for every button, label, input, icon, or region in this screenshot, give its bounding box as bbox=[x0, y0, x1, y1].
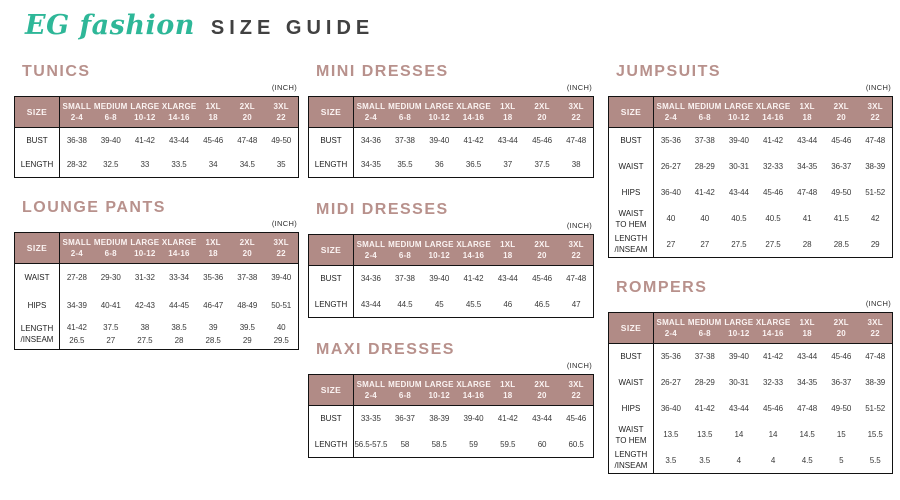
measurement-value: 41-42 bbox=[756, 128, 790, 154]
measurement-value: 58 bbox=[388, 432, 422, 458]
measurement-value: 47-48 bbox=[559, 128, 593, 153]
measurement-label: WAIST bbox=[609, 370, 654, 396]
measurement-value: 30-31 bbox=[722, 370, 756, 396]
measurement-value: 15 bbox=[824, 422, 858, 448]
size-column-header: 1XL 18 bbox=[491, 97, 525, 128]
measurement-value: 50-51 bbox=[264, 292, 298, 320]
measurement-value: 34-36 bbox=[354, 128, 388, 153]
measurement-value: 44-45 bbox=[162, 292, 196, 320]
measurement-value: 45-46 bbox=[559, 406, 593, 432]
measurement-value: 40.5 bbox=[756, 206, 790, 232]
measurement-label: BUST bbox=[309, 128, 354, 153]
size-column-header: LARGE 10-12 bbox=[422, 375, 456, 406]
measurement-value: 47-48 bbox=[858, 344, 892, 370]
measurement-value: 56.5-57.5 bbox=[354, 432, 388, 458]
measurement-value: 28-32 bbox=[60, 153, 94, 178]
measurement-value: 32-33 bbox=[756, 370, 790, 396]
measurement-value: 37 bbox=[491, 153, 525, 178]
measurement-value: 39-40 bbox=[456, 406, 490, 432]
table-row: WAIST26-2728-2930-3132-3334-3536-3738-39 bbox=[609, 370, 893, 396]
measurement-value: 34-36 bbox=[354, 266, 388, 292]
measurement-value: 43-44 bbox=[722, 180, 756, 206]
size-column-header: SMALL 2-4 bbox=[354, 375, 388, 406]
measurement-value: 46 bbox=[491, 292, 525, 318]
table-row: WAIST26-2728-2930-3132-3334-3536-3738-39 bbox=[609, 154, 893, 180]
measurement-value: 27.5 bbox=[722, 232, 756, 258]
measurement-label: BUST bbox=[309, 406, 354, 432]
size-column-header: SIZE bbox=[309, 375, 354, 406]
measurement-value: 5 bbox=[824, 448, 858, 474]
size-column-header: XLARGE 14-16 bbox=[162, 97, 196, 128]
size-table-maxi-dresses: SIZESMALL 2-4MEDIUM 6-8LARGE 10-12XLARGE… bbox=[308, 374, 594, 458]
measurement-value: 45-46 bbox=[756, 396, 790, 422]
table-row: LENGTH56.5-57.55858.55959.56060.5 bbox=[309, 432, 594, 458]
measurement-value: 14 bbox=[756, 422, 790, 448]
size-column-header: 3XL 22 bbox=[264, 97, 298, 128]
measurement-value: 4 bbox=[722, 448, 756, 474]
measurement-value: 47-48 bbox=[559, 266, 593, 292]
header-row: SIZESMALL 2-4MEDIUM 6-8LARGE 10-12XLARGE… bbox=[15, 97, 299, 128]
measurement-label: BUST bbox=[609, 128, 654, 154]
measurement-value: 27-28 bbox=[60, 264, 94, 292]
size-column-header: SMALL 2-4 bbox=[654, 313, 688, 344]
measurement-value: 35-36 bbox=[654, 344, 688, 370]
unit-label: (INCH) bbox=[608, 83, 891, 93]
size-column-header: 3XL 22 bbox=[858, 97, 892, 128]
size-column-header: LARGE 10-12 bbox=[722, 313, 756, 344]
size-column-header: SMALL 2-4 bbox=[654, 97, 688, 128]
measurement-value: 41-42 bbox=[456, 128, 490, 153]
measurement-value: 41-42 bbox=[688, 396, 722, 422]
measurement-value: 40.5 bbox=[722, 206, 756, 232]
table-row: WAIST TO HEM404040.540.54141.542 bbox=[609, 206, 893, 232]
measurement-value: 41.5 bbox=[824, 206, 858, 232]
measurement-value: 45-46 bbox=[756, 180, 790, 206]
size-column-header: LARGE 10-12 bbox=[128, 97, 162, 128]
table-row: HIPS36-4041-4243-4445-4647-4849-5051-52 bbox=[609, 396, 893, 422]
measurement-value: 26-27 bbox=[654, 154, 688, 180]
measurement-value: 43-44 bbox=[790, 344, 824, 370]
measurement-value: 4.5 bbox=[790, 448, 824, 474]
measurement-value: 38.5 28 bbox=[162, 320, 196, 350]
size-column-header: 2XL 20 bbox=[824, 97, 858, 128]
measurement-value: 28-29 bbox=[688, 370, 722, 396]
header-row: SIZESMALL 2-4MEDIUM 6-8LARGE 10-12XLARGE… bbox=[309, 97, 594, 128]
measurement-value: 51-52 bbox=[858, 180, 892, 206]
measurement-value: 60 bbox=[525, 432, 559, 458]
size-column-header: 2XL 20 bbox=[525, 375, 559, 406]
measurement-value: 40 29.5 bbox=[264, 320, 298, 350]
measurement-label: LENGTH /INSEAM bbox=[609, 232, 654, 258]
table-row: WAIST TO HEM13.513.5141414.51515.5 bbox=[609, 422, 893, 448]
size-column-header: SIZE bbox=[609, 313, 654, 344]
size-column-header: MEDIUM 6-8 bbox=[94, 97, 128, 128]
measurement-value: 13.5 bbox=[654, 422, 688, 448]
size-column-header: SIZE bbox=[609, 97, 654, 128]
measurement-value: 4 bbox=[756, 448, 790, 474]
measurement-value: 35 bbox=[264, 153, 298, 178]
section-title-maxi-dresses: MAXI DRESSES bbox=[316, 340, 594, 360]
size-column-header: MEDIUM 6-8 bbox=[388, 97, 422, 128]
measurement-label: WAIST TO HEM bbox=[609, 422, 654, 448]
header-row: SIZESMALL 2-4MEDIUM 6-8LARGE 10-12XLARGE… bbox=[609, 313, 893, 344]
size-column-header: XLARGE 14-16 bbox=[456, 97, 490, 128]
measurement-value: 43-44 bbox=[491, 128, 525, 153]
size-column-header: LARGE 10-12 bbox=[128, 233, 162, 264]
measurement-value: 26-27 bbox=[654, 370, 688, 396]
measurement-value: 41 bbox=[790, 206, 824, 232]
table-row: LENGTH /INSEAM41-42 26.537.5 2738 27.538… bbox=[15, 320, 299, 350]
measurement-value: 33-35 bbox=[354, 406, 388, 432]
measurement-value: 38-39 bbox=[858, 154, 892, 180]
measurement-value: 33 bbox=[128, 153, 162, 178]
size-column-header: SIZE bbox=[309, 97, 354, 128]
section-mini-dresses: MINI DRESSES (INCH) SIZESMALL 2-4MEDIUM … bbox=[308, 62, 594, 178]
measurement-value: 36-37 bbox=[824, 154, 858, 180]
measurement-value: 32.5 bbox=[94, 153, 128, 178]
header-row: SIZESMALL 2-4MEDIUM 6-8LARGE 10-12XLARGE… bbox=[309, 235, 594, 266]
measurement-value: 3.5 bbox=[654, 448, 688, 474]
section-tunics: TUNICS (INCH) SIZESMALL 2-4MEDIUM 6-8LAR… bbox=[14, 62, 299, 178]
header-row: SIZESMALL 2-4MEDIUM 6-8LARGE 10-12XLARGE… bbox=[609, 97, 893, 128]
size-column-header: SMALL 2-4 bbox=[354, 235, 388, 266]
measurement-value: 30-31 bbox=[722, 154, 756, 180]
measurement-value: 28.5 bbox=[824, 232, 858, 258]
table-row: BUST34-3637-3839-4041-4243-4445-4647-48 bbox=[309, 128, 594, 153]
size-column-header: XLARGE 14-16 bbox=[756, 97, 790, 128]
size-column-header: MEDIUM 6-8 bbox=[688, 313, 722, 344]
measurement-label: HIPS bbox=[15, 292, 60, 320]
measurement-label: LENGTH /INSEAM bbox=[15, 320, 60, 350]
measurement-value: 40-41 bbox=[94, 292, 128, 320]
section-title-midi-dresses: MIDI DRESSES bbox=[316, 200, 594, 220]
measurement-value: 14.5 bbox=[790, 422, 824, 448]
measurement-value: 40 bbox=[654, 206, 688, 232]
size-column-header: 2XL 20 bbox=[230, 233, 264, 264]
page-title: SIZE GUIDE bbox=[211, 17, 374, 40]
size-column-header: LARGE 10-12 bbox=[722, 97, 756, 128]
measurement-value: 34-35 bbox=[354, 153, 388, 178]
measurement-value: 42 bbox=[858, 206, 892, 232]
measurement-value: 58.5 bbox=[422, 432, 456, 458]
measurement-value: 37-38 bbox=[688, 128, 722, 154]
size-column-header: 1XL 18 bbox=[790, 97, 824, 128]
measurement-label: WAIST bbox=[609, 154, 654, 180]
unit-label: (INCH) bbox=[308, 361, 592, 371]
measurement-value: 34-35 bbox=[790, 370, 824, 396]
measurement-value: 46.5 bbox=[525, 292, 559, 318]
measurement-label: LENGTH bbox=[309, 153, 354, 178]
measurement-value: 40 bbox=[688, 206, 722, 232]
measurement-value: 37.5 27 bbox=[94, 320, 128, 350]
size-column-header: MEDIUM 6-8 bbox=[94, 233, 128, 264]
table-row: LENGTH43-4444.54545.54646.547 bbox=[309, 292, 594, 318]
measurement-value: 47-48 bbox=[790, 396, 824, 422]
measurement-value: 5.5 bbox=[858, 448, 892, 474]
measurement-value: 41-42 bbox=[128, 128, 162, 153]
measurement-value: 43-44 bbox=[790, 128, 824, 154]
measurement-value: 39-40 bbox=[722, 128, 756, 154]
measurement-value: 32-33 bbox=[756, 154, 790, 180]
measurement-value: 49-50 bbox=[264, 128, 298, 153]
measurement-value: 38-39 bbox=[858, 370, 892, 396]
section-title-mini-dresses: MINI DRESSES bbox=[316, 62, 594, 82]
size-column-header: 3XL 22 bbox=[559, 375, 593, 406]
table-row: BUST35-3637-3839-4041-4243-4445-4647-48 bbox=[609, 128, 893, 154]
measurement-value: 27 bbox=[688, 232, 722, 258]
unit-label: (INCH) bbox=[14, 219, 297, 229]
measurement-value: 36-40 bbox=[654, 180, 688, 206]
size-column-header: 1XL 18 bbox=[196, 233, 230, 264]
header-row: SIZESMALL 2-4MEDIUM 6-8LARGE 10-12XLARGE… bbox=[309, 375, 594, 406]
measurement-value: 39-40 bbox=[422, 266, 456, 292]
measurement-value: 46-47 bbox=[196, 292, 230, 320]
measurement-value: 51-52 bbox=[858, 396, 892, 422]
size-column-header: 2XL 20 bbox=[525, 97, 559, 128]
size-column-header: MEDIUM 6-8 bbox=[688, 97, 722, 128]
measurement-value: 41-42 bbox=[688, 180, 722, 206]
size-column-header: 1XL 18 bbox=[491, 235, 525, 266]
size-column-header: XLARGE 14-16 bbox=[456, 235, 490, 266]
size-column-header: LARGE 10-12 bbox=[422, 235, 456, 266]
measurement-value: 33.5 bbox=[162, 153, 196, 178]
measurement-value: 47-48 bbox=[858, 128, 892, 154]
measurement-label: LENGTH bbox=[309, 432, 354, 458]
measurement-value: 60.5 bbox=[559, 432, 593, 458]
measurement-value: 37-38 bbox=[688, 344, 722, 370]
section-maxi-dresses: MAXI DRESSES (INCH) SIZESMALL 2-4MEDIUM … bbox=[308, 340, 594, 458]
size-column-header: LARGE 10-12 bbox=[422, 97, 456, 128]
size-column-header: 3XL 22 bbox=[264, 233, 298, 264]
header-row: SIZESMALL 2-4MEDIUM 6-8LARGE 10-12XLARGE… bbox=[15, 233, 299, 264]
measurement-value: 39.5 29 bbox=[230, 320, 264, 350]
measurement-label: BUST bbox=[309, 266, 354, 292]
measurement-value: 35-36 bbox=[196, 264, 230, 292]
measurement-value: 3.5 bbox=[688, 448, 722, 474]
measurement-value: 39-40 bbox=[264, 264, 298, 292]
measurement-value: 41-42 26.5 bbox=[60, 320, 94, 350]
measurement-value: 33-34 bbox=[162, 264, 196, 292]
measurement-label: WAIST TO HEM bbox=[609, 206, 654, 232]
measurement-value: 42-43 bbox=[128, 292, 162, 320]
size-table-midi-dresses: SIZESMALL 2-4MEDIUM 6-8LARGE 10-12XLARGE… bbox=[308, 234, 594, 318]
measurement-value: 59.5 bbox=[491, 432, 525, 458]
size-table-tunics: SIZESMALL 2-4MEDIUM 6-8LARGE 10-12XLARGE… bbox=[14, 96, 299, 178]
measurement-value: 41-42 bbox=[491, 406, 525, 432]
measurement-label: HIPS bbox=[609, 180, 654, 206]
unit-label: (INCH) bbox=[14, 83, 297, 93]
size-column-header: 3XL 22 bbox=[559, 97, 593, 128]
table-row: LENGTH /INSEAM272727.527.52828.529 bbox=[609, 232, 893, 258]
unit-label: (INCH) bbox=[308, 221, 592, 231]
measurement-value: 13.5 bbox=[688, 422, 722, 448]
unit-label: (INCH) bbox=[608, 299, 891, 309]
measurement-value: 39-40 bbox=[422, 128, 456, 153]
measurement-value: 43-44 bbox=[722, 396, 756, 422]
size-table-rompers: SIZESMALL 2-4MEDIUM 6-8LARGE 10-12XLARGE… bbox=[608, 312, 893, 474]
measurement-value: 38 27.5 bbox=[128, 320, 162, 350]
size-column-header: 2XL 20 bbox=[230, 97, 264, 128]
measurement-value: 59 bbox=[456, 432, 490, 458]
table-row: BUST34-3637-3839-4041-4243-4445-4647-48 bbox=[309, 266, 594, 292]
measurement-value: 49-50 bbox=[824, 180, 858, 206]
table-row: BUST36-3839-4041-4243-4445-4647-4849-50 bbox=[15, 128, 299, 153]
measurement-value: 36-38 bbox=[60, 128, 94, 153]
table-row: LENGTH34-3535.53636.53737.538 bbox=[309, 153, 594, 178]
size-column-header: 2XL 20 bbox=[824, 313, 858, 344]
size-column-header: 3XL 22 bbox=[559, 235, 593, 266]
measurement-value: 39-40 bbox=[722, 344, 756, 370]
measurement-value: 47-48 bbox=[230, 128, 264, 153]
size-table-lounge-pants: SIZESMALL 2-4MEDIUM 6-8LARGE 10-12XLARGE… bbox=[14, 232, 299, 350]
table-row: BUST35-3637-3839-4041-4243-4445-4647-48 bbox=[609, 344, 893, 370]
measurement-value: 35.5 bbox=[388, 153, 422, 178]
table-row: HIPS36-4041-4243-4445-4647-4849-5051-52 bbox=[609, 180, 893, 206]
measurement-value: 48-49 bbox=[230, 292, 264, 320]
section-rompers: ROMPERS (INCH) SIZESMALL 2-4MEDIUM 6-8LA… bbox=[608, 278, 893, 474]
section-jumpsuits: JUMPSUITS (INCH) SIZESMALL 2-4MEDIUM 6-8… bbox=[608, 62, 893, 258]
size-column-header: MEDIUM 6-8 bbox=[388, 235, 422, 266]
measurement-value: 29 bbox=[858, 232, 892, 258]
measurement-value: 34-39 bbox=[60, 292, 94, 320]
measurement-value: 36-37 bbox=[388, 406, 422, 432]
measurement-value: 43-44 bbox=[491, 266, 525, 292]
measurement-value: 36-37 bbox=[824, 370, 858, 396]
size-column-header: XLARGE 14-16 bbox=[456, 375, 490, 406]
table-row: BUST33-3536-3738-3939-4041-4243-4445-46 bbox=[309, 406, 594, 432]
table-row: HIPS34-3940-4142-4344-4546-4748-4950-51 bbox=[15, 292, 299, 320]
measurement-value: 43-44 bbox=[162, 128, 196, 153]
measurement-value: 36-40 bbox=[654, 396, 688, 422]
measurement-value: 37-38 bbox=[230, 264, 264, 292]
measurement-value: 45 bbox=[422, 292, 456, 318]
measurement-value: 47-48 bbox=[790, 180, 824, 206]
size-column-header: XLARGE 14-16 bbox=[162, 233, 196, 264]
measurement-value: 27 bbox=[654, 232, 688, 258]
measurement-value: 45-46 bbox=[525, 128, 559, 153]
measurement-value: 37-38 bbox=[388, 266, 422, 292]
measurement-value: 37-38 bbox=[388, 128, 422, 153]
size-column-header: SIZE bbox=[15, 233, 60, 264]
size-column-header: XLARGE 14-16 bbox=[756, 313, 790, 344]
measurement-value: 27.5 bbox=[756, 232, 790, 258]
measurement-value: 45-46 bbox=[824, 128, 858, 154]
size-guide-page: EG fashion SIZE GUIDE TUNICS (INCH) SIZE… bbox=[0, 0, 900, 500]
measurement-label: BUST bbox=[15, 128, 60, 153]
measurement-value: 37.5 bbox=[525, 153, 559, 178]
measurement-value: 45-46 bbox=[824, 344, 858, 370]
size-column-header: 1XL 18 bbox=[790, 313, 824, 344]
measurement-value: 28-29 bbox=[688, 154, 722, 180]
size-column-header: SMALL 2-4 bbox=[60, 97, 94, 128]
measurement-value: 47 bbox=[559, 292, 593, 318]
measurement-value: 29-30 bbox=[94, 264, 128, 292]
size-column-header: 2XL 20 bbox=[525, 235, 559, 266]
measurement-value: 41-42 bbox=[456, 266, 490, 292]
measurement-label: WAIST bbox=[15, 264, 60, 292]
measurement-value: 38 bbox=[559, 153, 593, 178]
measurement-label: LENGTH bbox=[309, 292, 354, 318]
measurement-label: LENGTH bbox=[15, 153, 60, 178]
measurement-value: 31-32 bbox=[128, 264, 162, 292]
measurement-value: 43-44 bbox=[354, 292, 388, 318]
size-table-mini-dresses: SIZESMALL 2-4MEDIUM 6-8LARGE 10-12XLARGE… bbox=[308, 96, 594, 178]
measurement-value: 36 bbox=[422, 153, 456, 178]
measurement-value: 35-36 bbox=[654, 128, 688, 154]
size-column-header: SIZE bbox=[309, 235, 354, 266]
size-column-header: 1XL 18 bbox=[491, 375, 525, 406]
measurement-label: LENGTH /INSEAM bbox=[609, 448, 654, 474]
section-title-lounge-pants: LOUNGE PANTS bbox=[22, 198, 299, 218]
section-lounge-pants: LOUNGE PANTS (INCH) SIZESMALL 2-4MEDIUM … bbox=[14, 198, 299, 350]
measurement-value: 36.5 bbox=[456, 153, 490, 178]
measurement-value: 45.5 bbox=[456, 292, 490, 318]
section-title-jumpsuits: JUMPSUITS bbox=[616, 62, 893, 82]
measurement-value: 34 bbox=[196, 153, 230, 178]
measurement-value: 39 28.5 bbox=[196, 320, 230, 350]
brand-logo: EG fashion bbox=[25, 10, 195, 41]
brand-header: EG fashion SIZE GUIDE bbox=[25, 10, 374, 41]
measurement-value: 43-44 bbox=[525, 406, 559, 432]
unit-label: (INCH) bbox=[308, 83, 592, 93]
measurement-value: 41-42 bbox=[756, 344, 790, 370]
measurement-value: 38-39 bbox=[422, 406, 456, 432]
size-column-header: SMALL 2-4 bbox=[354, 97, 388, 128]
measurement-value: 14 bbox=[722, 422, 756, 448]
measurement-value: 45-46 bbox=[196, 128, 230, 153]
measurement-value: 45-46 bbox=[525, 266, 559, 292]
section-midi-dresses: MIDI DRESSES (INCH) SIZESMALL 2-4MEDIUM … bbox=[308, 200, 594, 318]
measurement-value: 49-50 bbox=[824, 396, 858, 422]
table-row: WAIST27-2829-3031-3233-3435-3637-3839-40 bbox=[15, 264, 299, 292]
section-title-tunics: TUNICS bbox=[22, 62, 299, 82]
measurement-value: 28 bbox=[790, 232, 824, 258]
measurement-value: 34.5 bbox=[230, 153, 264, 178]
size-column-header: 3XL 22 bbox=[858, 313, 892, 344]
size-column-header: 1XL 18 bbox=[196, 97, 230, 128]
measurement-label: BUST bbox=[609, 344, 654, 370]
size-column-header: MEDIUM 6-8 bbox=[388, 375, 422, 406]
table-row: LENGTH /INSEAM3.53.5444.555.5 bbox=[609, 448, 893, 474]
measurement-value: 44.5 bbox=[388, 292, 422, 318]
table-row: LENGTH28-3232.53333.53434.535 bbox=[15, 153, 299, 178]
size-column-header: SIZE bbox=[15, 97, 60, 128]
size-table-jumpsuits: SIZESMALL 2-4MEDIUM 6-8LARGE 10-12XLARGE… bbox=[608, 96, 893, 258]
size-column-header: SMALL 2-4 bbox=[60, 233, 94, 264]
measurement-value: 39-40 bbox=[94, 128, 128, 153]
measurement-label: HIPS bbox=[609, 396, 654, 422]
measurement-value: 15.5 bbox=[858, 422, 892, 448]
measurement-value: 34-35 bbox=[790, 154, 824, 180]
section-title-rompers: ROMPERS bbox=[616, 278, 893, 298]
